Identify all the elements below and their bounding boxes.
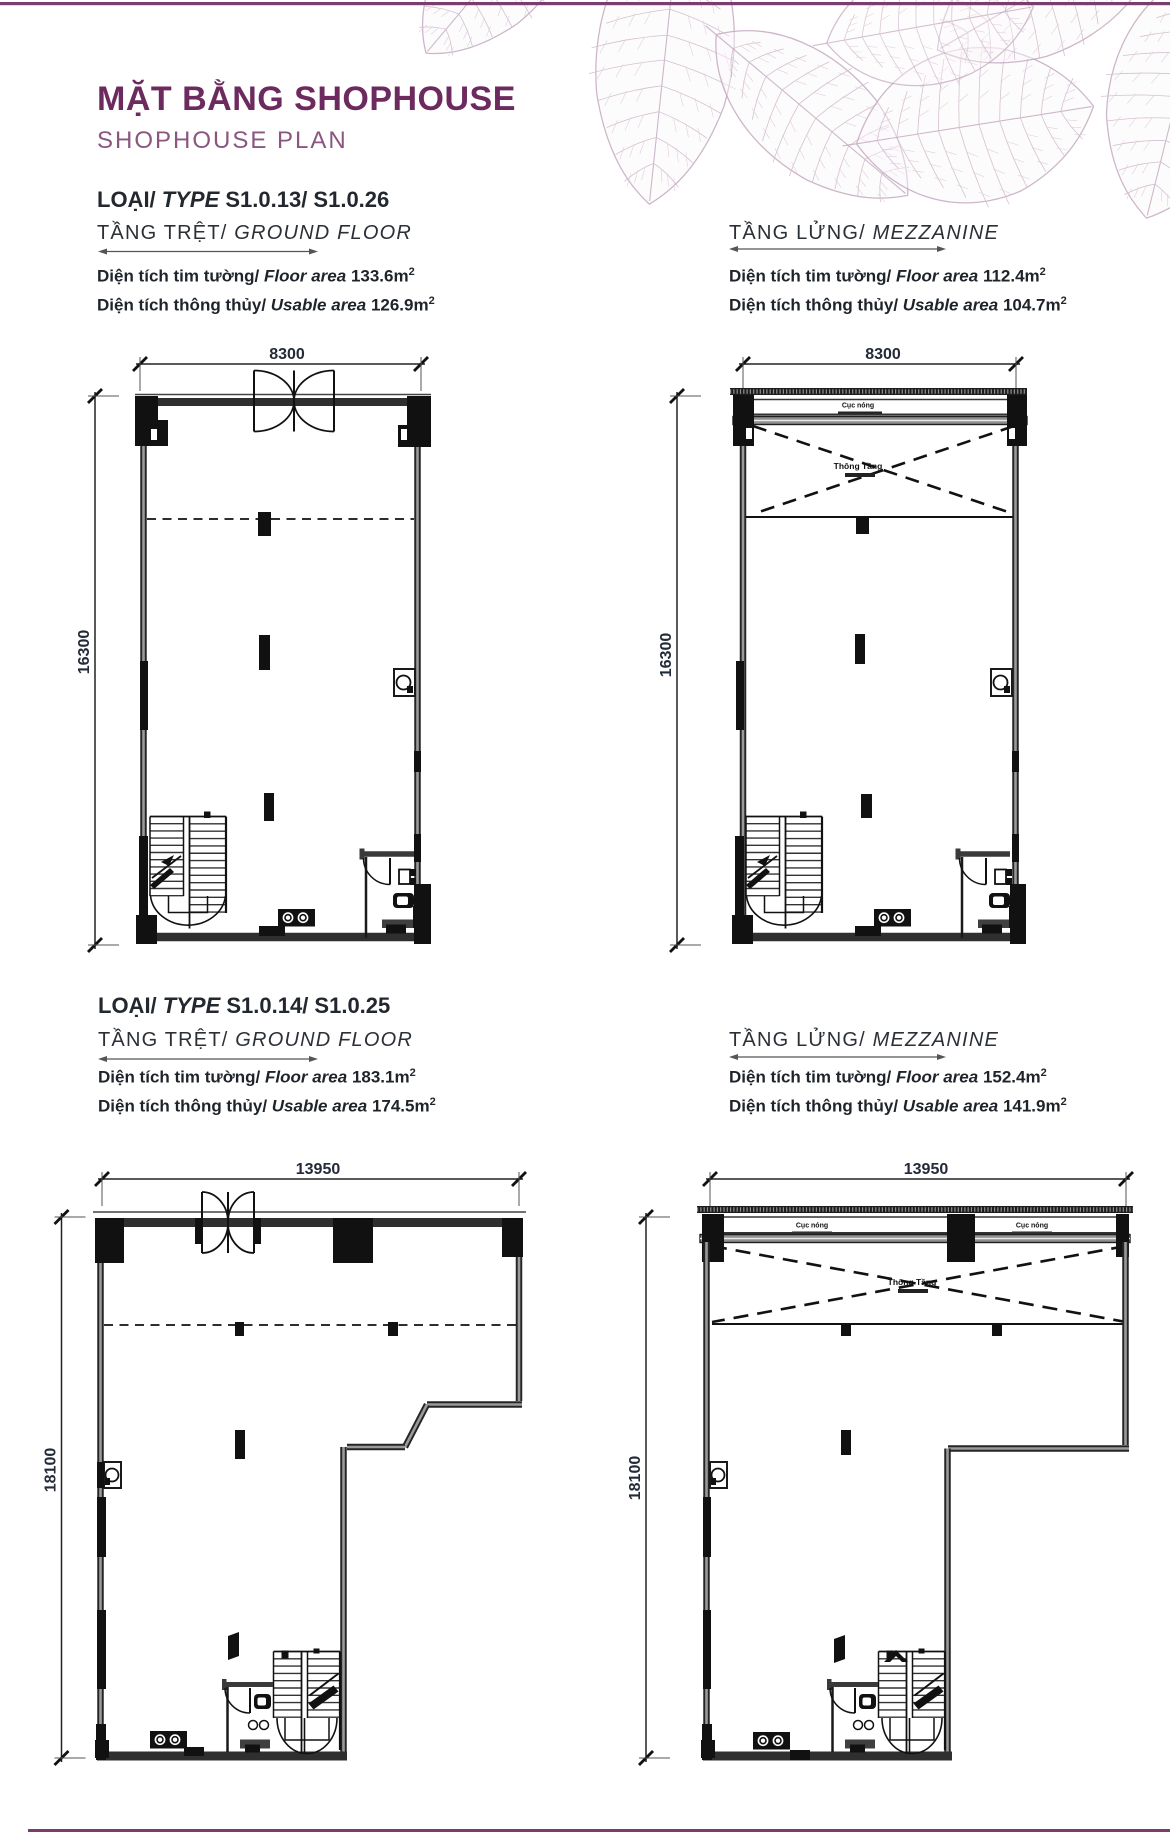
svg-text:13950: 13950 [904,1161,949,1178]
svg-text:8300: 8300 [269,346,305,363]
svg-text:Thông Tầng: Thông Tầng [834,461,883,471]
svg-text:8300: 8300 [865,346,901,363]
svg-text:18100: 18100 [43,1448,60,1493]
svg-text:13950: 13950 [296,1161,341,1178]
svg-text:Thông Tầng: Thông Tầng [888,1277,937,1287]
svg-text:Cục nóng: Cục nóng [842,403,874,410]
svg-text:16300: 16300 [76,630,93,675]
svg-text:Cục nóng: Cục nóng [1016,1223,1048,1230]
svg-text:16300: 16300 [658,633,675,678]
svg-text:18100: 18100 [627,1456,644,1501]
svg-text:Cục nóng: Cục nóng [796,1223,828,1230]
